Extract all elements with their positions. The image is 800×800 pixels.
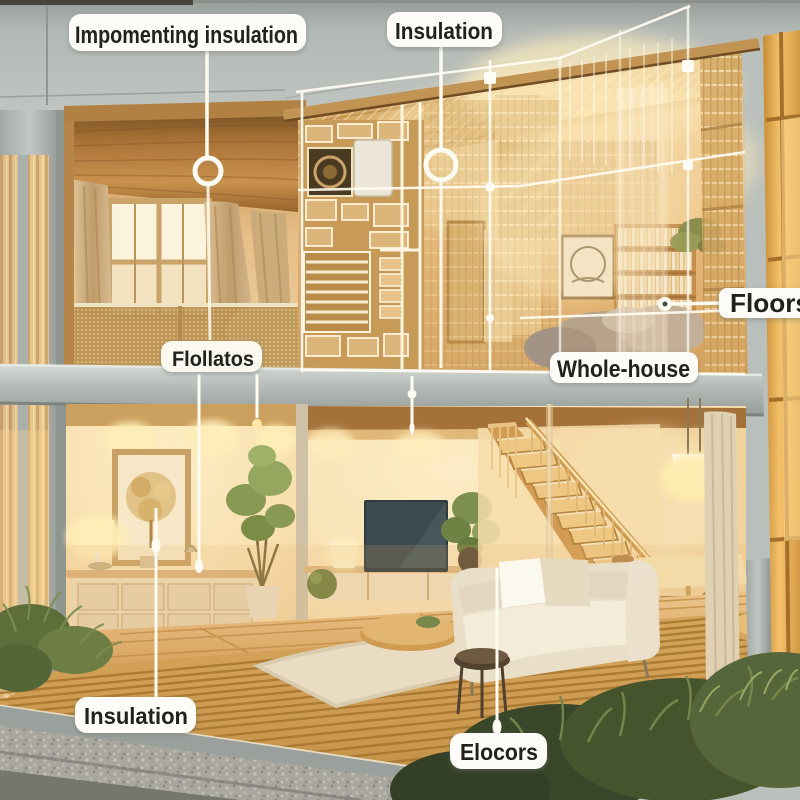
svg-text:Insulation: Insulation	[395, 18, 493, 44]
svg-text:Insulation: Insulation	[84, 703, 188, 729]
svg-text:Impomenting insulation: Impomenting insulation	[75, 22, 298, 49]
svg-text:Elocors: Elocors	[460, 739, 538, 765]
svg-text:Whole-house: Whole-house	[557, 356, 690, 383]
svg-text:Floors: Floors	[730, 288, 800, 318]
svg-text:Flollatos: Flollatos	[172, 348, 254, 371]
